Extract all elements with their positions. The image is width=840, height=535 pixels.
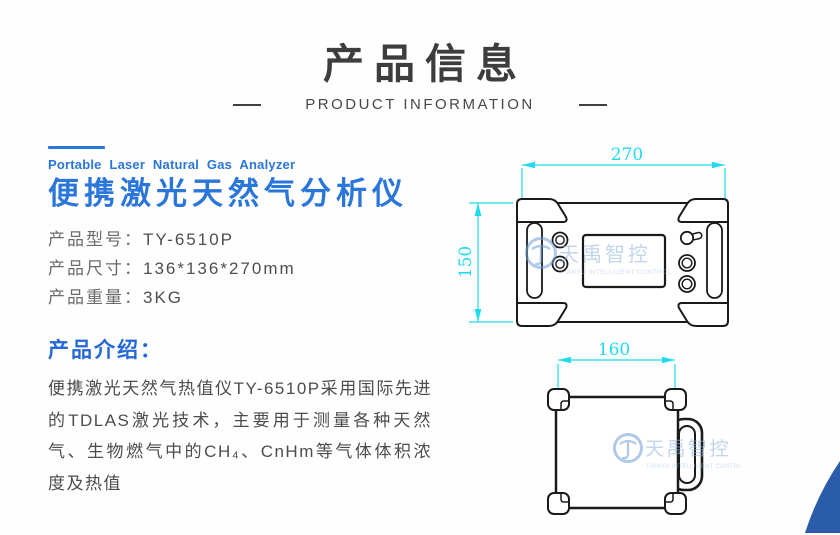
spec-row-model: 产品型号：TY-6510P <box>48 225 438 254</box>
brand-name-english: TIANYU INTELLIGENT CONTROL <box>560 269 671 276</box>
spec-row-size: 产品尺寸：136*136*270mm <box>48 254 438 283</box>
side-view-drawing: 160 天禹智控 TIANYU INTELLIGENT CONTROL <box>540 340 740 535</box>
page-header: 产品信息 PRODUCT INFORMATION <box>0 42 840 113</box>
product-name-english: Portable Laser Natural Gas Analyzer <box>48 157 438 172</box>
intro-paragraph: 便携激光天然气热值仪TY-6510P采用国际先进的TDLAS激光技术，主要用于测… <box>48 373 432 499</box>
spec-value: 136*136*270mm <box>143 259 296 278</box>
spec-label: 产品重量： <box>48 288 143 307</box>
spec-label: 产品型号： <box>48 230 143 249</box>
brand-name: 天禹智控 <box>559 243 651 266</box>
brand-name: 天禹智控 <box>645 438 731 460</box>
page-subtitle-row: PRODUCT INFORMATION <box>0 96 840 113</box>
spec-value: TY-6510P <box>143 230 234 249</box>
intro-heading: 产品介绍： <box>48 334 438 364</box>
side-width-dim-label: 160 <box>598 340 630 360</box>
spec-label: 产品尺寸： <box>48 259 143 278</box>
right-rail <box>707 223 722 298</box>
front-width-dim-label: 270 <box>611 145 643 165</box>
connector-port-icon <box>679 276 695 292</box>
brand-name-english: TIANYU INTELLIGENT CONTROL <box>646 464 740 470</box>
accent-rule <box>48 146 105 149</box>
front-view-drawing: 270 150 <box>455 140 755 340</box>
product-name-chinese: 便携激光天然气分析仪 <box>48 177 438 211</box>
subtitle-left-rule <box>233 104 261 106</box>
corner-wave-decoration <box>795 461 840 533</box>
spec-row-weight: 产品重量：3KG <box>48 283 438 312</box>
dimension-lines <box>558 360 675 390</box>
front-height-dim-label: 150 <box>456 246 476 278</box>
product-info-panel: Portable Laser Natural Gas Analyzer 便携激光… <box>48 146 438 499</box>
spec-value: 3KG <box>143 288 183 307</box>
spec-list: 产品型号：TY-6510P 产品尺寸：136*136*270mm 产品重量：3K… <box>48 225 438 312</box>
page-title: 产品信息 <box>10 42 840 87</box>
page-subtitle: PRODUCT INFORMATION <box>305 96 534 113</box>
subtitle-right-rule <box>579 104 607 106</box>
connector-port-icon <box>679 255 695 271</box>
